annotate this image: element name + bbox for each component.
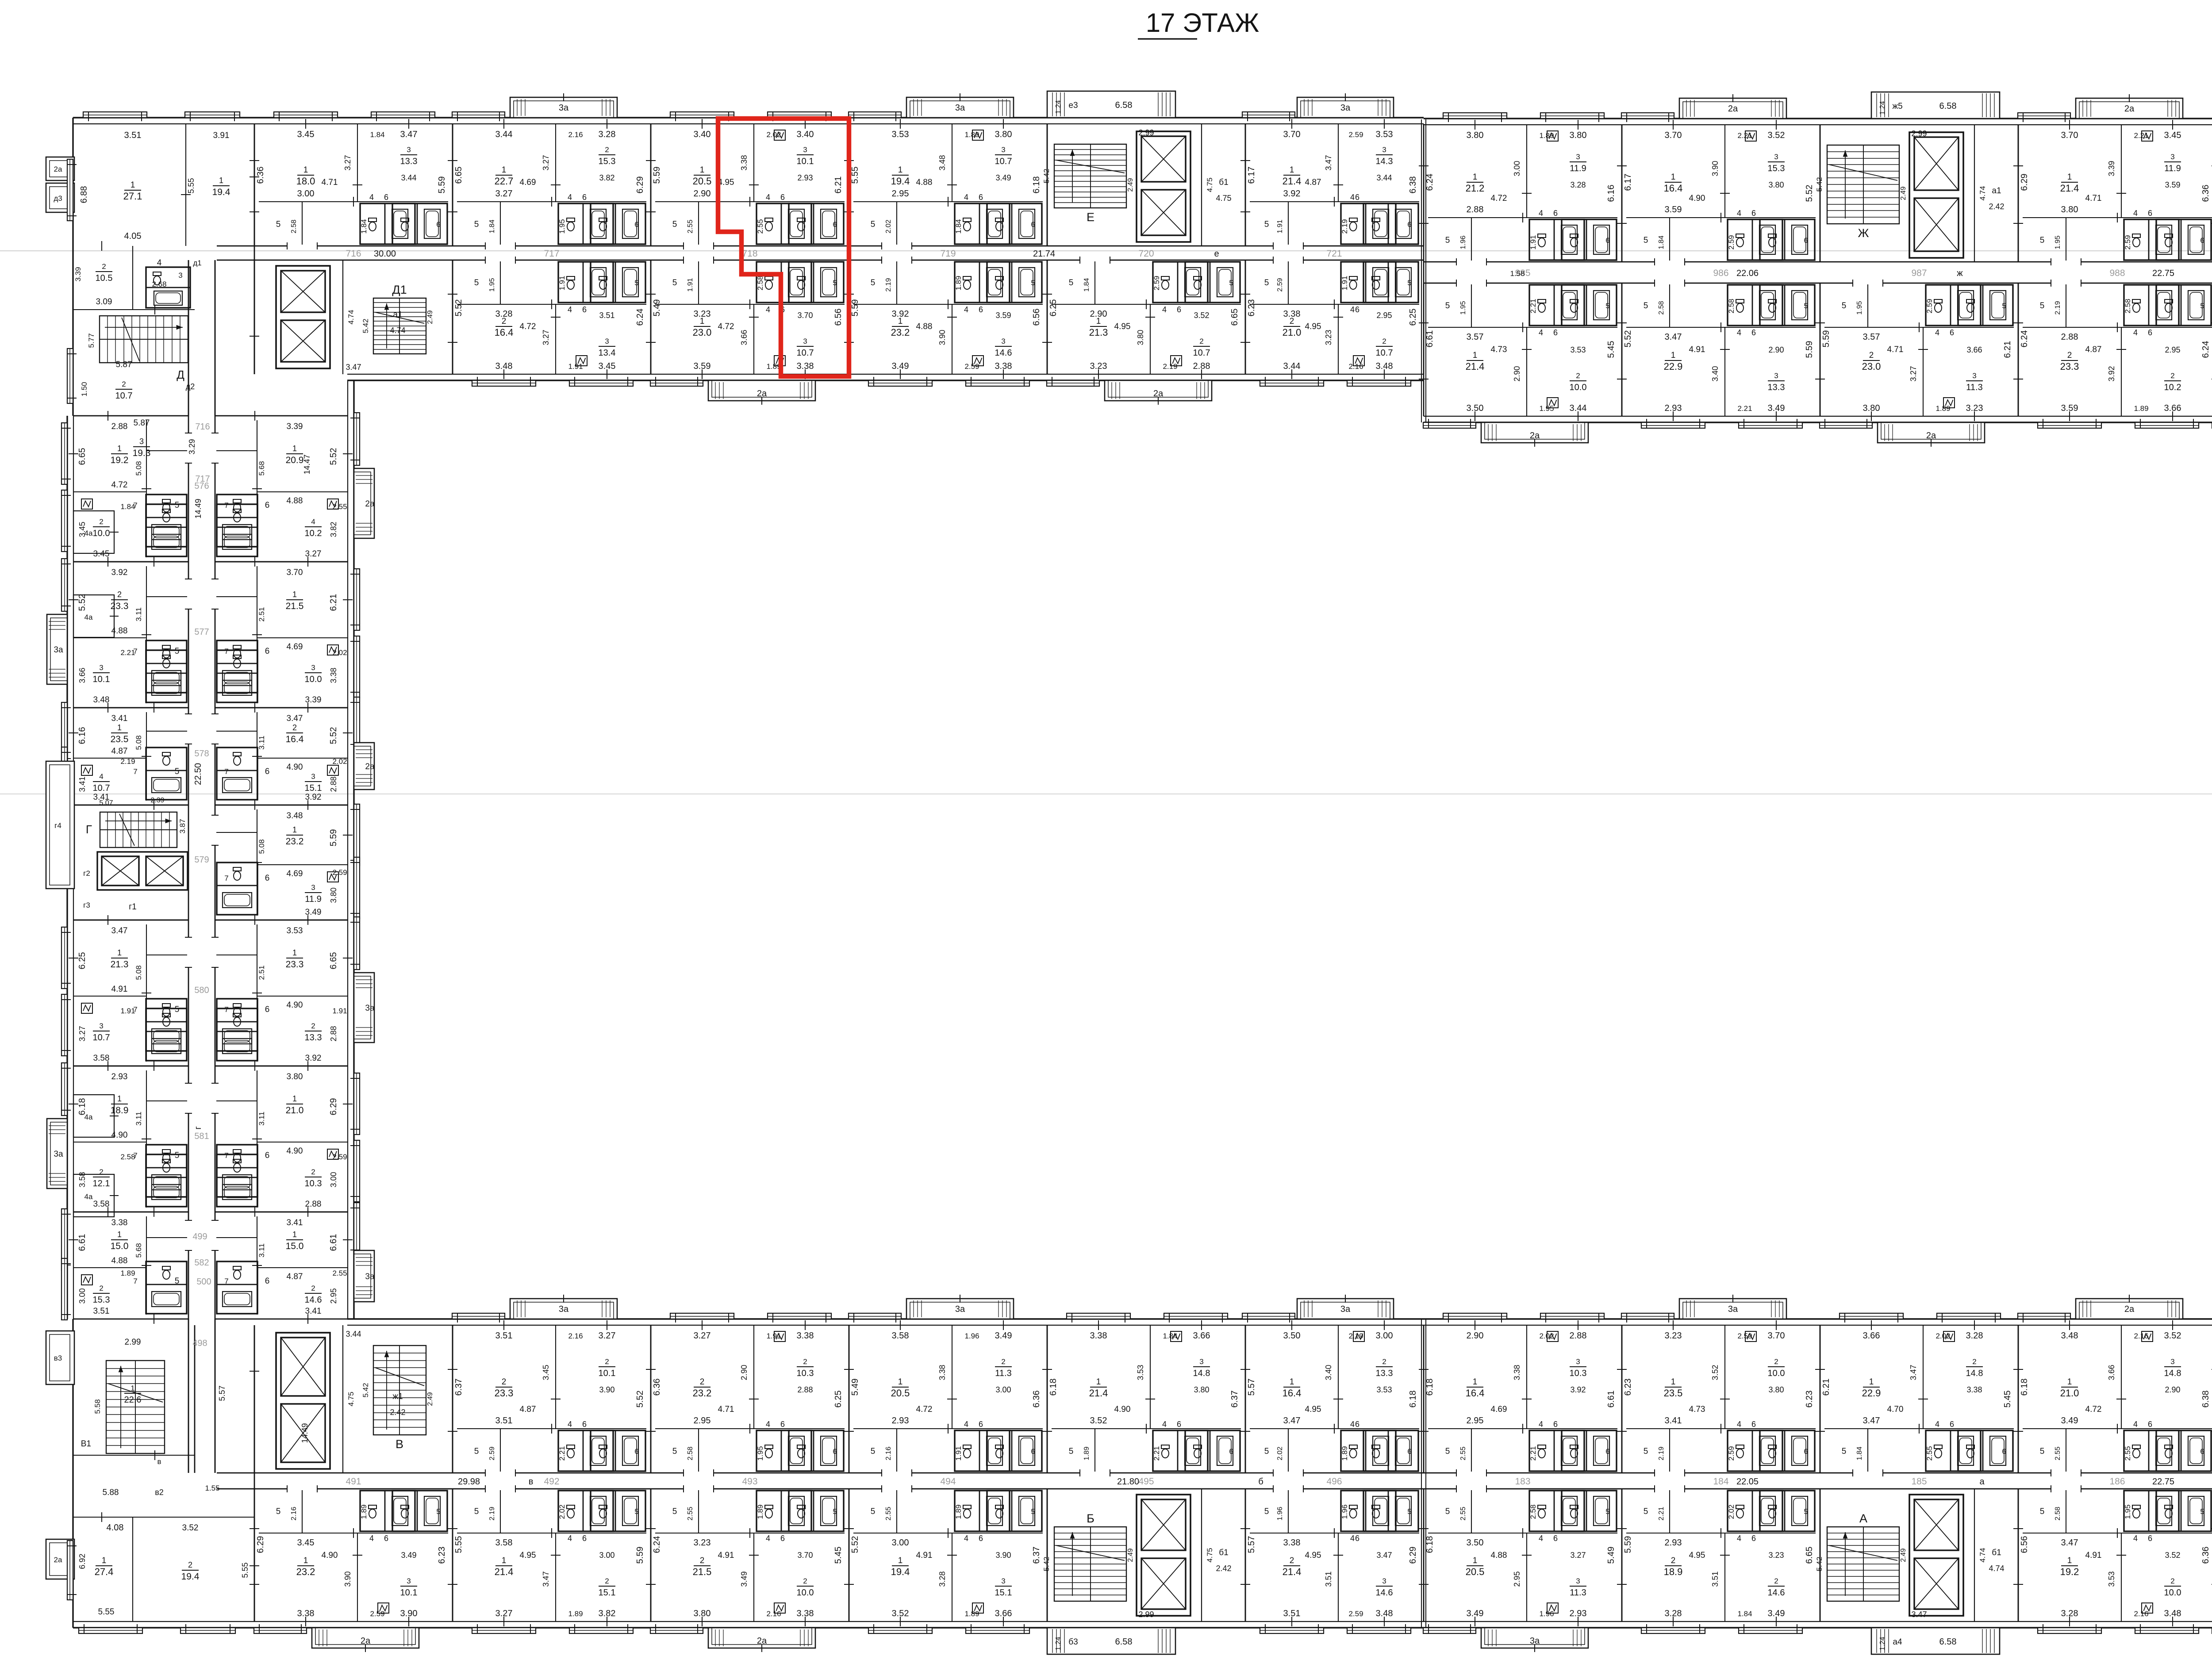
svg-text:6: 6 — [384, 193, 388, 202]
svg-text:5.52: 5.52 — [77, 594, 87, 611]
svg-text:3.58: 3.58 — [93, 1200, 110, 1209]
svg-text:13.3: 13.3 — [400, 157, 418, 166]
svg-text:3.23: 3.23 — [694, 1538, 711, 1548]
svg-text:5: 5 — [634, 1507, 638, 1516]
svg-text:22.9: 22.9 — [1664, 361, 1683, 372]
svg-text:4: 4 — [568, 1534, 572, 1543]
svg-text:4.74: 4.74 — [390, 326, 405, 335]
svg-text:4: 4 — [1935, 1420, 1939, 1429]
svg-text:5.49: 5.49 — [1606, 1547, 1616, 1564]
svg-text:3.53: 3.53 — [1570, 345, 1586, 354]
svg-text:6: 6 — [265, 1005, 270, 1014]
svg-text:4: 4 — [964, 1420, 968, 1429]
svg-text:4.72: 4.72 — [520, 322, 536, 331]
svg-text:3.44: 3.44 — [1376, 173, 1392, 182]
svg-text:3.28: 3.28 — [599, 130, 616, 139]
svg-text:10.1: 10.1 — [400, 1588, 418, 1598]
svg-text:6.56: 6.56 — [1032, 309, 1041, 326]
svg-text:5.42: 5.42 — [1042, 1556, 1051, 1571]
svg-text:3.38: 3.38 — [938, 1365, 947, 1380]
svg-text:2.49: 2.49 — [426, 1392, 434, 1406]
svg-text:3.11: 3.11 — [257, 1112, 266, 1126]
svg-text:2а: 2а — [2124, 104, 2135, 114]
svg-text:21.2: 21.2 — [1466, 183, 1485, 194]
svg-text:ж1: ж1 — [392, 1392, 403, 1401]
svg-text:3а: 3а — [1728, 1304, 1738, 1314]
svg-text:5.42: 5.42 — [1815, 177, 1824, 192]
svg-text:5: 5 — [1605, 1507, 1609, 1516]
svg-text:21.80: 21.80 — [1117, 1477, 1139, 1487]
svg-text:1.95: 1.95 — [1459, 301, 1467, 314]
svg-text:1: 1 — [898, 165, 903, 175]
svg-text:4.91: 4.91 — [1689, 345, 1705, 354]
svg-text:4.90: 4.90 — [287, 1146, 303, 1156]
svg-text:13.4: 13.4 — [599, 348, 616, 358]
svg-text:6: 6 — [1031, 220, 1035, 229]
svg-text:3.47: 3.47 — [1911, 1610, 1927, 1619]
svg-text:21.5: 21.5 — [693, 1566, 712, 1577]
svg-text:186: 186 — [2109, 1476, 2125, 1487]
svg-text:2.58: 2.58 — [756, 276, 764, 290]
svg-text:3.47: 3.47 — [346, 363, 361, 372]
svg-text:2.58: 2.58 — [1658, 301, 1665, 314]
svg-text:4.90: 4.90 — [322, 1551, 338, 1560]
svg-text:1: 1 — [292, 444, 297, 453]
svg-text:3.90: 3.90 — [995, 1551, 1011, 1560]
svg-text:579: 579 — [194, 855, 209, 865]
svg-text:4.73: 4.73 — [1491, 345, 1507, 354]
svg-text:3.82: 3.82 — [329, 521, 338, 537]
svg-text:В: В — [396, 1438, 403, 1451]
svg-text:3.45: 3.45 — [297, 1538, 315, 1548]
svg-text:4: 4 — [1539, 1420, 1543, 1429]
svg-text:3.38: 3.38 — [1283, 309, 1301, 319]
svg-text:6: 6 — [2002, 1447, 2006, 1456]
svg-text:6.56: 6.56 — [833, 309, 843, 326]
svg-text:6: 6 — [1950, 328, 1954, 337]
svg-text:5: 5 — [1407, 279, 1411, 287]
svg-text:19.4: 19.4 — [212, 187, 230, 197]
svg-text:4.69: 4.69 — [287, 869, 303, 878]
svg-text:581: 581 — [194, 1131, 209, 1141]
svg-text:3а: 3а — [559, 1304, 569, 1314]
svg-text:5: 5 — [871, 278, 876, 288]
svg-text:3.23: 3.23 — [1665, 1331, 1682, 1341]
svg-text:5: 5 — [2040, 236, 2045, 245]
svg-text:3.47: 3.47 — [1283, 1416, 1301, 1426]
svg-text:1.24: 1.24 — [1055, 1637, 1062, 1650]
svg-text:1.24: 1.24 — [1879, 1637, 1886, 1650]
svg-text:3.70: 3.70 — [797, 1551, 813, 1560]
svg-text:2.16: 2.16 — [290, 1507, 298, 1520]
svg-text:5: 5 — [1804, 1507, 1808, 1516]
svg-text:6.16: 6.16 — [77, 727, 87, 744]
svg-text:3.59: 3.59 — [995, 311, 1011, 320]
svg-text:2.19: 2.19 — [2054, 301, 2062, 314]
svg-text:2.95: 2.95 — [329, 1288, 338, 1303]
svg-text:2.55: 2.55 — [885, 1507, 892, 1520]
svg-text:22.7: 22.7 — [495, 176, 514, 187]
svg-text:19.4: 19.4 — [891, 1566, 910, 1577]
svg-text:22.50: 22.50 — [193, 763, 203, 785]
svg-text:2.21: 2.21 — [1658, 1507, 1665, 1520]
svg-text:6: 6 — [1553, 1534, 1558, 1543]
svg-text:2: 2 — [1576, 372, 1580, 380]
svg-text:6: 6 — [2148, 1420, 2152, 1429]
svg-text:4.71: 4.71 — [1887, 345, 1904, 354]
svg-text:5: 5 — [175, 1151, 180, 1160]
svg-text:29.98: 29.98 — [458, 1477, 480, 1487]
svg-text:3.47: 3.47 — [1665, 332, 1682, 342]
svg-text:494: 494 — [940, 1476, 956, 1487]
svg-text:2: 2 — [700, 1556, 705, 1565]
svg-text:6: 6 — [384, 1534, 388, 1543]
svg-text:6: 6 — [1355, 1420, 1359, 1429]
svg-text:4.91: 4.91 — [718, 1551, 734, 1560]
svg-text:6: 6 — [833, 1447, 837, 1456]
svg-text:3.66: 3.66 — [1193, 1331, 1210, 1341]
svg-text:11.9: 11.9 — [1570, 164, 1586, 173]
svg-text:3.53: 3.53 — [1376, 1385, 1392, 1394]
svg-text:4.08: 4.08 — [107, 1523, 124, 1533]
svg-text:4.72: 4.72 — [111, 480, 128, 490]
svg-text:6: 6 — [833, 220, 837, 229]
svg-text:В1: В1 — [81, 1439, 91, 1449]
svg-text:4: 4 — [369, 193, 374, 202]
svg-text:1.84: 1.84 — [370, 130, 384, 139]
svg-text:1: 1 — [502, 1556, 507, 1565]
svg-text:14.8: 14.8 — [1966, 1369, 1983, 1378]
svg-text:5.77: 5.77 — [87, 333, 96, 348]
svg-text:3.45: 3.45 — [2164, 130, 2181, 140]
svg-text:3: 3 — [2170, 1357, 2174, 1366]
svg-text:3.80: 3.80 — [1194, 1385, 1209, 1394]
svg-text:20.5: 20.5 — [693, 176, 712, 187]
svg-text:3: 3 — [311, 883, 315, 892]
svg-text:Д1: Д1 — [392, 283, 407, 296]
svg-text:5.07: 5.07 — [99, 799, 113, 807]
svg-text:5: 5 — [276, 1507, 281, 1516]
svg-text:5: 5 — [2040, 301, 2045, 311]
svg-text:3.92: 3.92 — [1283, 189, 1301, 199]
svg-text:4.74: 4.74 — [1978, 186, 1987, 200]
svg-text:3.80: 3.80 — [329, 887, 338, 903]
svg-text:6.29: 6.29 — [256, 1536, 265, 1553]
svg-text:17 ЭТАЖ: 17 ЭТАЖ — [1146, 8, 1260, 38]
svg-text:7: 7 — [224, 1151, 228, 1160]
svg-text:2.21: 2.21 — [120, 648, 135, 657]
svg-text:3: 3 — [311, 772, 315, 781]
svg-text:6.88: 6.88 — [79, 186, 89, 203]
svg-text:2.19: 2.19 — [1658, 1446, 1665, 1460]
svg-text:4: 4 — [568, 305, 572, 314]
svg-text:3.51: 3.51 — [93, 1307, 110, 1316]
svg-text:496: 496 — [1326, 1476, 1342, 1487]
svg-text:5.59: 5.59 — [850, 299, 860, 317]
svg-text:2.59: 2.59 — [1348, 130, 1363, 139]
svg-text:1: 1 — [303, 165, 308, 175]
svg-text:4.69: 4.69 — [520, 178, 536, 187]
svg-text:3.48: 3.48 — [2061, 1331, 2078, 1341]
svg-text:ж: ж — [1957, 268, 1963, 278]
svg-text:4: 4 — [964, 1534, 968, 1543]
svg-text:4.71: 4.71 — [2085, 194, 2102, 203]
svg-text:4.87: 4.87 — [520, 1405, 536, 1414]
svg-text:6.65: 6.65 — [1805, 1547, 1814, 1564]
svg-text:22.06: 22.06 — [1736, 268, 1759, 278]
svg-text:2.42: 2.42 — [1216, 1564, 1231, 1573]
svg-text:719: 719 — [940, 249, 956, 259]
svg-text:1.95: 1.95 — [488, 278, 496, 291]
svg-text:2.90: 2.90 — [1768, 345, 1784, 354]
svg-text:15.0: 15.0 — [111, 1241, 129, 1251]
svg-text:3.38: 3.38 — [1090, 1331, 1107, 1341]
svg-text:4: 4 — [1737, 209, 1741, 218]
svg-text:2.95: 2.95 — [1376, 311, 1392, 320]
svg-text:2: 2 — [2067, 351, 2072, 360]
svg-text:5.59: 5.59 — [635, 1547, 645, 1564]
svg-text:5.87: 5.87 — [134, 418, 150, 428]
svg-text:6.65: 6.65 — [454, 167, 464, 184]
svg-text:2.95: 2.95 — [694, 1416, 711, 1426]
svg-text:1.91: 1.91 — [954, 1446, 963, 1461]
svg-text:2.19: 2.19 — [885, 278, 892, 291]
svg-text:2: 2 — [1774, 1577, 1778, 1585]
svg-text:5: 5 — [871, 1447, 876, 1456]
svg-text:3а: 3а — [955, 1304, 965, 1314]
svg-text:5.55: 5.55 — [454, 1536, 464, 1553]
svg-text:13.3: 13.3 — [1768, 383, 1785, 392]
svg-text:5: 5 — [2040, 1447, 2045, 1456]
svg-text:10.7: 10.7 — [115, 391, 133, 401]
svg-text:10.7: 10.7 — [1376, 348, 1393, 358]
svg-text:4: 4 — [311, 518, 315, 526]
svg-text:15.1: 15.1 — [305, 783, 322, 793]
svg-text:4.95: 4.95 — [1305, 322, 1321, 331]
svg-text:10.5: 10.5 — [96, 273, 113, 283]
svg-text:6: 6 — [1177, 305, 1181, 314]
svg-text:2.90: 2.90 — [1513, 366, 1521, 381]
svg-text:1: 1 — [2067, 173, 2072, 182]
svg-text:3.28: 3.28 — [1570, 180, 1586, 189]
svg-text:5: 5 — [436, 1507, 440, 1516]
svg-text:3.11: 3.11 — [257, 736, 266, 750]
svg-text:2.90: 2.90 — [1467, 1331, 1484, 1341]
svg-text:21.74: 21.74 — [1033, 249, 1055, 259]
svg-text:3.27: 3.27 — [541, 155, 550, 170]
svg-text:1: 1 — [292, 825, 297, 834]
svg-text:3: 3 — [803, 146, 807, 154]
svg-text:1: 1 — [117, 723, 122, 732]
svg-text:5.87: 5.87 — [116, 360, 132, 369]
svg-text:3.70: 3.70 — [1768, 1331, 1785, 1341]
svg-text:4: 4 — [1162, 1420, 1167, 1429]
svg-text:2.16: 2.16 — [568, 1332, 583, 1340]
svg-text:3.92: 3.92 — [892, 309, 909, 319]
svg-text:5: 5 — [175, 501, 180, 510]
svg-text:2.88: 2.88 — [1467, 205, 1484, 215]
svg-text:3.50: 3.50 — [1467, 1538, 1484, 1548]
svg-text:6: 6 — [634, 1447, 638, 1456]
svg-text:3а: 3а — [365, 1004, 375, 1013]
svg-text:3.90: 3.90 — [1711, 161, 1720, 176]
svg-text:1.96: 1.96 — [964, 1332, 979, 1340]
svg-text:491: 491 — [346, 1476, 361, 1487]
svg-text:5: 5 — [1605, 302, 1609, 310]
svg-text:5.55: 5.55 — [850, 167, 860, 184]
svg-text:5.08: 5.08 — [134, 965, 143, 980]
svg-text:6: 6 — [582, 193, 587, 202]
svg-text:в3: в3 — [54, 1354, 62, 1362]
svg-text:б3: б3 — [1068, 1637, 1078, 1647]
svg-text:3.40: 3.40 — [694, 130, 711, 139]
svg-text:6: 6 — [265, 647, 270, 656]
svg-text:4: 4 — [1350, 1534, 1355, 1543]
svg-text:4: 4 — [568, 193, 572, 202]
svg-text:2: 2 — [122, 380, 126, 388]
svg-text:6: 6 — [265, 501, 270, 510]
svg-text:4: 4 — [2133, 209, 2138, 218]
svg-text:2.59: 2.59 — [332, 868, 347, 877]
svg-text:988: 988 — [2109, 268, 2125, 278]
svg-text:2: 2 — [605, 1577, 609, 1585]
svg-text:23.3: 23.3 — [111, 601, 129, 611]
svg-text:11.9: 11.9 — [2164, 164, 2181, 173]
svg-text:6: 6 — [780, 193, 785, 202]
svg-text:6.37: 6.37 — [454, 1379, 464, 1396]
svg-text:2.55: 2.55 — [1459, 1507, 1467, 1520]
svg-text:10.1: 10.1 — [797, 157, 814, 166]
svg-text:6.18: 6.18 — [1032, 176, 1041, 194]
svg-text:3.58: 3.58 — [93, 1054, 110, 1063]
svg-text:2.16: 2.16 — [885, 1446, 892, 1460]
svg-text:1: 1 — [1290, 165, 1294, 175]
svg-text:1.55: 1.55 — [205, 1484, 219, 1492]
svg-text:3.90: 3.90 — [599, 1385, 614, 1394]
svg-text:3.47: 3.47 — [541, 1571, 550, 1587]
svg-text:3.45: 3.45 — [93, 549, 110, 559]
svg-text:1: 1 — [117, 444, 122, 453]
svg-text:3.53: 3.53 — [892, 130, 909, 139]
svg-text:5: 5 — [2040, 1507, 2045, 1516]
svg-text:499: 499 — [192, 1232, 207, 1242]
svg-text:3.49: 3.49 — [740, 1571, 749, 1587]
svg-text:3.49: 3.49 — [2061, 1416, 2078, 1426]
svg-text:3: 3 — [1382, 146, 1386, 154]
svg-text:14.8: 14.8 — [2164, 1369, 2181, 1378]
svg-text:23.2: 23.2 — [286, 836, 304, 847]
svg-text:1: 1 — [1473, 173, 1478, 182]
svg-text:10.2: 10.2 — [305, 529, 322, 538]
svg-text:13.3: 13.3 — [1376, 1369, 1393, 1378]
svg-text:2: 2 — [803, 1357, 807, 1366]
svg-text:6.61: 6.61 — [1606, 1391, 1616, 1408]
svg-text:2.55: 2.55 — [332, 1269, 347, 1277]
svg-text:3а: 3а — [54, 1150, 63, 1159]
svg-text:4.95: 4.95 — [1689, 1551, 1705, 1560]
svg-text:3.52: 3.52 — [1090, 1416, 1107, 1426]
svg-text:1.89: 1.89 — [360, 1504, 368, 1519]
svg-text:6: 6 — [979, 1534, 983, 1543]
svg-text:2: 2 — [311, 1284, 315, 1292]
svg-text:5: 5 — [1407, 1507, 1411, 1516]
svg-text:3: 3 — [1576, 1357, 1580, 1366]
svg-text:2.59: 2.59 — [1925, 299, 1934, 313]
svg-text:5.52: 5.52 — [1805, 185, 1814, 202]
svg-text:2а: 2а — [54, 1556, 62, 1564]
svg-text:5.42: 5.42 — [1815, 1556, 1824, 1571]
svg-text:3.28: 3.28 — [1966, 1331, 1983, 1341]
svg-text:14.8: 14.8 — [1193, 1369, 1210, 1378]
svg-text:2.59: 2.59 — [1276, 278, 1284, 291]
svg-text:3.00: 3.00 — [1513, 161, 1521, 176]
svg-text:2.58: 2.58 — [687, 1446, 694, 1460]
svg-text:4.90: 4.90 — [1689, 194, 1705, 203]
svg-text:3.50: 3.50 — [1283, 1331, 1301, 1341]
svg-text:1: 1 — [2067, 1556, 2072, 1565]
svg-text:4: 4 — [2133, 1420, 2138, 1429]
svg-text:1: 1 — [1473, 1556, 1478, 1565]
svg-text:5: 5 — [2200, 1507, 2204, 1516]
svg-text:2.51: 2.51 — [257, 607, 266, 621]
svg-text:10.0: 10.0 — [2164, 1588, 2181, 1598]
svg-text:11.9: 11.9 — [305, 894, 321, 904]
svg-text:16.4: 16.4 — [1466, 1388, 1485, 1399]
svg-text:4.72: 4.72 — [718, 322, 734, 331]
svg-text:2.90: 2.90 — [2165, 1385, 2180, 1394]
svg-text:6: 6 — [1407, 1447, 1411, 1456]
svg-text:11.3: 11.3 — [1570, 1588, 1586, 1598]
svg-text:716: 716 — [195, 422, 210, 432]
svg-text:5.52: 5.52 — [329, 448, 338, 465]
svg-text:4: 4 — [1162, 305, 1167, 314]
svg-text:3.38: 3.38 — [1966, 1385, 1982, 1394]
svg-text:16.4: 16.4 — [286, 734, 304, 744]
svg-text:2: 2 — [292, 723, 297, 732]
svg-text:10.1: 10.1 — [599, 1369, 616, 1378]
svg-text:6.36: 6.36 — [2201, 185, 2211, 202]
svg-text:6: 6 — [582, 1420, 587, 1429]
svg-text:2.95: 2.95 — [892, 189, 909, 199]
svg-text:30.00: 30.00 — [374, 249, 396, 259]
svg-text:4.70: 4.70 — [1887, 1405, 1904, 1414]
svg-text:3.92: 3.92 — [1570, 1385, 1586, 1394]
svg-text:2.19: 2.19 — [120, 757, 135, 766]
svg-text:3.87: 3.87 — [178, 819, 187, 833]
svg-text:6: 6 — [979, 193, 983, 202]
svg-text:3: 3 — [2170, 153, 2174, 161]
svg-text:6: 6 — [634, 220, 638, 229]
svg-text:1: 1 — [898, 1556, 903, 1565]
svg-text:4.75: 4.75 — [1216, 194, 1231, 203]
svg-text:2.49: 2.49 — [1127, 178, 1134, 192]
svg-text:3.44: 3.44 — [495, 130, 513, 139]
svg-text:580: 580 — [194, 985, 209, 995]
svg-text:5: 5 — [1644, 1447, 1648, 1456]
svg-text:1.95: 1.95 — [2124, 1504, 2132, 1519]
svg-text:10.0: 10.0 — [1768, 1369, 1785, 1378]
svg-text:6.56: 6.56 — [2020, 1536, 2029, 1553]
svg-text:14.6: 14.6 — [1376, 1588, 1393, 1598]
svg-text:7: 7 — [224, 874, 228, 882]
svg-text:5: 5 — [1229, 279, 1233, 287]
svg-text:19.4: 19.4 — [891, 176, 910, 187]
svg-text:6.36: 6.36 — [256, 167, 265, 184]
svg-text:3.49: 3.49 — [995, 1331, 1012, 1341]
svg-text:6.21: 6.21 — [1821, 1379, 1831, 1396]
svg-text:1.91: 1.91 — [1529, 235, 1537, 249]
svg-text:7: 7 — [133, 1277, 137, 1285]
